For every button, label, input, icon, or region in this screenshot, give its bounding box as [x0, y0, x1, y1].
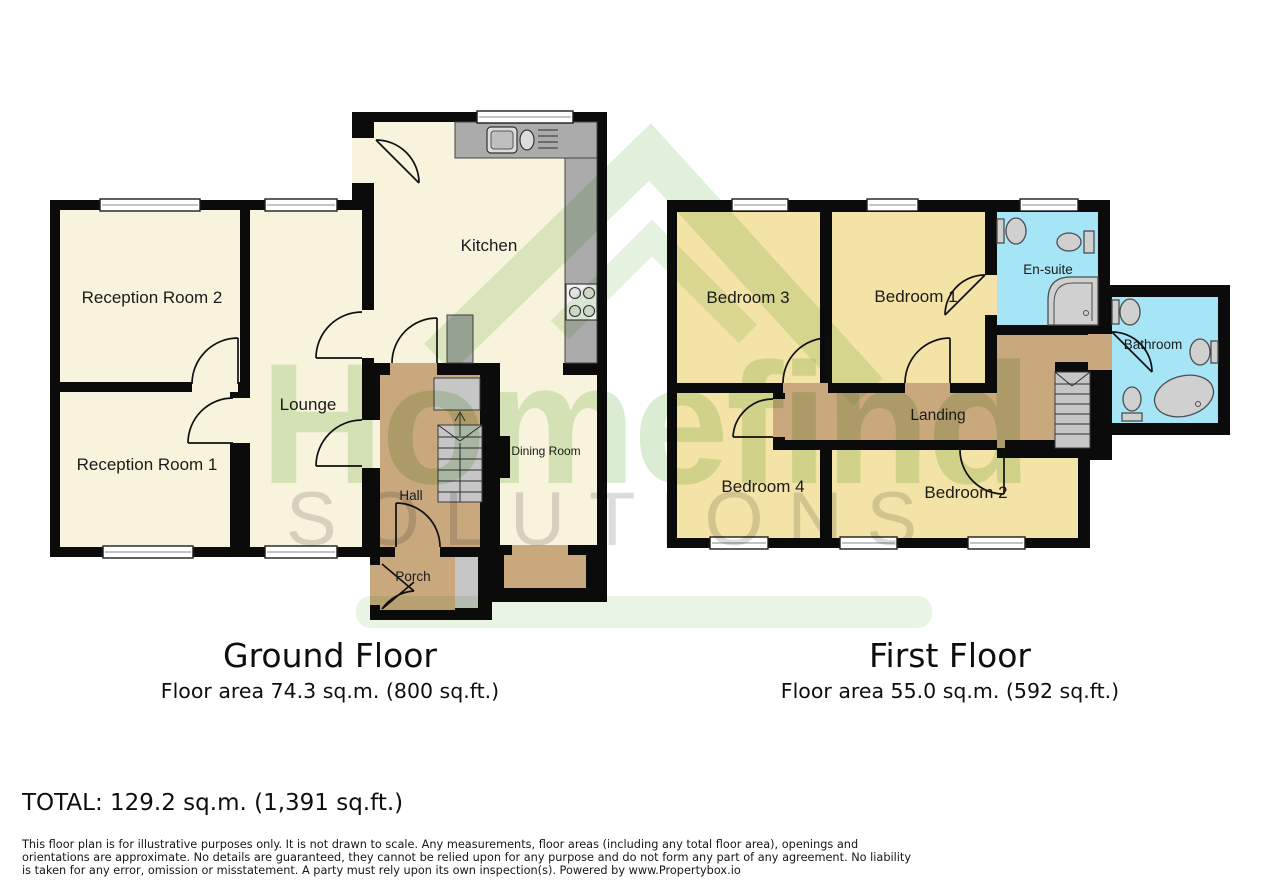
wall-segment	[832, 440, 960, 450]
ground-floor-area: Floor area 74.3 sq.m. (800 sq.ft.)	[80, 679, 580, 703]
room-label-landing: Landing	[910, 407, 965, 424]
porch-step	[455, 557, 478, 608]
basin-icon	[1112, 299, 1140, 325]
first-floor-plan: Bedroom 3 Bedroom 1 En-suite Bathroom La…	[667, 199, 1230, 549]
wall-segment	[997, 448, 1090, 458]
wall-nib	[500, 436, 510, 478]
floor-plan-canvas: Reception Room 2 Reception Room 1 Lounge…	[0, 0, 1280, 895]
room-label-bedroom2: Bedroom 2	[924, 483, 1007, 502]
patio-area	[504, 555, 586, 588]
door-opening	[390, 363, 437, 375]
basin-icon	[1190, 339, 1218, 365]
door-opening	[362, 420, 380, 468]
wall-segment	[773, 393, 785, 399]
shower-icon	[1048, 277, 1098, 325]
first-floor-title: First Floor	[750, 636, 1150, 675]
hob-icon	[566, 284, 597, 320]
room-label-reception1: Reception Room 1	[77, 455, 218, 474]
counter	[565, 158, 597, 363]
room-label-bedroom3: Bedroom 3	[706, 288, 789, 307]
door-opening	[1088, 334, 1112, 370]
door-opening	[395, 547, 440, 557]
first-floor-area: Floor area 55.0 sq.m. (592 sq.ft.)	[700, 679, 1200, 703]
room-label-porch: Porch	[395, 569, 430, 584]
room-dining	[500, 375, 597, 545]
door-opening	[370, 565, 380, 605]
ground-floor-title: Ground Floor	[130, 636, 530, 675]
room-landing	[997, 335, 1090, 362]
room-label-bathroom: Bathroom	[1124, 337, 1183, 352]
door-opening	[783, 383, 828, 393]
wall-segment	[785, 440, 832, 450]
room-label-ensuite: En-suite	[1023, 262, 1073, 277]
disclaimer-text: This floor plan is for illustrative purp…	[22, 838, 914, 877]
door-opening	[192, 382, 238, 392]
basin-icon	[997, 218, 1026, 244]
room-label-hall: Hall	[399, 488, 422, 503]
stairs-icon	[438, 412, 482, 502]
floorplan-page: Reception Room 2 Reception Room 1 Lounge…	[0, 0, 1280, 895]
door-opening	[352, 138, 374, 183]
ground-floor-plan: Reception Room 2 Reception Room 1 Lounge…	[50, 111, 607, 620]
room-label-kitchen: Kitchen	[461, 236, 518, 255]
room-label-lounge: Lounge	[280, 395, 337, 414]
room-label-bedroom4: Bedroom 4	[721, 477, 804, 496]
room-opening	[500, 363, 563, 375]
door-opening	[985, 275, 997, 315]
door-opening	[230, 398, 250, 443]
chimney-breast	[447, 315, 473, 363]
cupboard	[434, 378, 480, 410]
toilet-icon	[1057, 231, 1094, 253]
door-opening	[905, 383, 950, 393]
room-opening	[512, 545, 568, 555]
toilet-icon	[1122, 387, 1142, 421]
room-label-reception2: Reception Room 2	[82, 288, 223, 307]
room-label-dining: Dining Room	[511, 444, 580, 458]
door-opening	[362, 310, 374, 358]
door-opening	[773, 399, 785, 437]
room-label-bedroom1: Bedroom 1	[874, 287, 957, 306]
stairs-icon	[1055, 372, 1090, 448]
total-area-text: TOTAL: 129.2 sq.m. (1,391 sq.ft.)	[22, 790, 403, 816]
wall-segment	[773, 437, 785, 450]
room-lounge	[250, 210, 362, 547]
